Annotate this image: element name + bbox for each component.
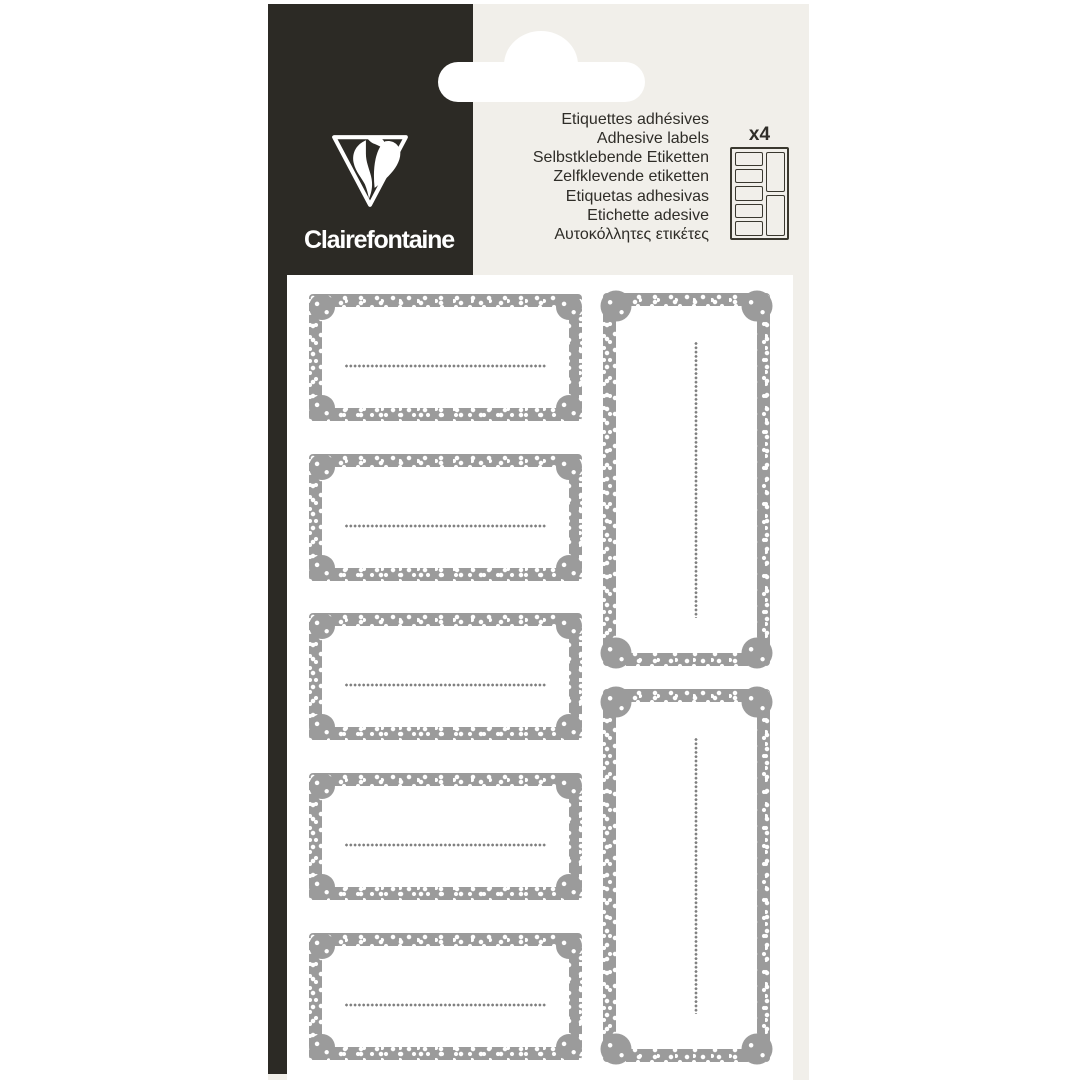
product-name-en: Adhesive labels xyxy=(533,129,709,148)
product-name-it: Etichette adesive xyxy=(533,206,709,225)
label-corner-bump xyxy=(556,613,582,639)
diagram-cell xyxy=(766,152,785,193)
label-corner-bump xyxy=(556,555,582,581)
label-corner-bump xyxy=(309,714,335,740)
diagram-cell xyxy=(766,195,785,236)
label-corner-bump xyxy=(742,1034,773,1065)
label-corner-bump xyxy=(556,773,582,799)
label-corner-bump xyxy=(601,1034,632,1065)
product-name-fr: Etiquettes adhésives xyxy=(533,110,709,129)
diagram-left-column xyxy=(735,152,763,236)
diagram-right-column xyxy=(766,152,785,236)
label-corner-bump xyxy=(742,687,773,718)
diagram-cell xyxy=(735,152,763,166)
adhesive-label-vertical xyxy=(603,689,770,1062)
label-blank-area xyxy=(322,946,569,1047)
product-package: Clairefontaine Etiquettes adhésives Adhe… xyxy=(268,4,809,1080)
brand-wordmark: Clairefontaine xyxy=(284,226,474,255)
label-corner-bump xyxy=(309,454,335,480)
label-blank-area xyxy=(322,467,569,568)
label-corner-bump xyxy=(556,874,582,900)
diagram-cell xyxy=(735,169,763,183)
write-on-dotted-line xyxy=(694,342,697,618)
product-name-de: Selbstklebende Etiketten xyxy=(533,148,709,167)
label-corner-bump xyxy=(309,773,335,799)
diagram-cell xyxy=(735,221,763,235)
label-corner-bump xyxy=(309,294,335,320)
adhesive-label-horizontal xyxy=(309,454,582,581)
label-corner-bump xyxy=(309,874,335,900)
package-spine-strip xyxy=(268,275,287,1074)
sheet-count-label: x4 xyxy=(730,124,789,146)
product-name-nl: Zelfklevende etiketten xyxy=(533,167,709,186)
adhesive-label-horizontal xyxy=(309,773,582,900)
diagram-cell xyxy=(735,186,763,200)
label-corner-bump xyxy=(309,555,335,581)
label-corner-bump xyxy=(309,933,335,959)
label-blank-area xyxy=(322,307,569,408)
label-corner-bump xyxy=(556,454,582,480)
write-on-dotted-line xyxy=(345,683,547,686)
label-corner-bump xyxy=(601,687,632,718)
label-corner-bump xyxy=(556,1034,582,1060)
product-name-list: Etiquettes adhésives Adhesive labels Sel… xyxy=(533,110,709,244)
adhesive-label-horizontal xyxy=(309,294,582,421)
diagram-cell xyxy=(735,204,763,218)
label-blank-area xyxy=(616,702,757,1049)
label-corner-bump xyxy=(556,395,582,421)
clairefontaine-triangle-logo xyxy=(327,131,413,211)
write-on-dotted-line xyxy=(694,738,697,1014)
label-corner-bump xyxy=(556,294,582,320)
label-corner-bump xyxy=(309,1034,335,1060)
label-sheet xyxy=(287,275,793,1080)
label-corner-bump xyxy=(742,638,773,669)
write-on-dotted-line xyxy=(345,843,547,846)
sheet-layout-diagram xyxy=(730,147,789,240)
write-on-dotted-line xyxy=(345,364,547,367)
label-blank-area xyxy=(322,786,569,887)
header-black-panel: Clairefontaine xyxy=(268,4,473,275)
adhesive-label-horizontal xyxy=(309,613,582,740)
label-blank-area xyxy=(616,306,757,653)
adhesive-label-horizontal xyxy=(309,933,582,1060)
label-corner-bump xyxy=(742,291,773,322)
hanger-hole-slot xyxy=(438,62,645,102)
logo-face xyxy=(374,141,400,188)
label-corner-bump xyxy=(601,638,632,669)
write-on-dotted-line xyxy=(345,1003,547,1006)
label-corner-bump xyxy=(556,933,582,959)
product-name-el: Αυτοκόλλητες ετικέτες xyxy=(533,225,709,244)
product-name-es: Etiquetas adhesivas xyxy=(533,187,709,206)
adhesive-label-vertical xyxy=(603,293,770,666)
write-on-dotted-line xyxy=(345,524,547,527)
label-corner-bump xyxy=(309,613,335,639)
label-corner-bump xyxy=(601,291,632,322)
label-corner-bump xyxy=(556,714,582,740)
label-blank-area xyxy=(322,626,569,727)
label-corner-bump xyxy=(309,395,335,421)
